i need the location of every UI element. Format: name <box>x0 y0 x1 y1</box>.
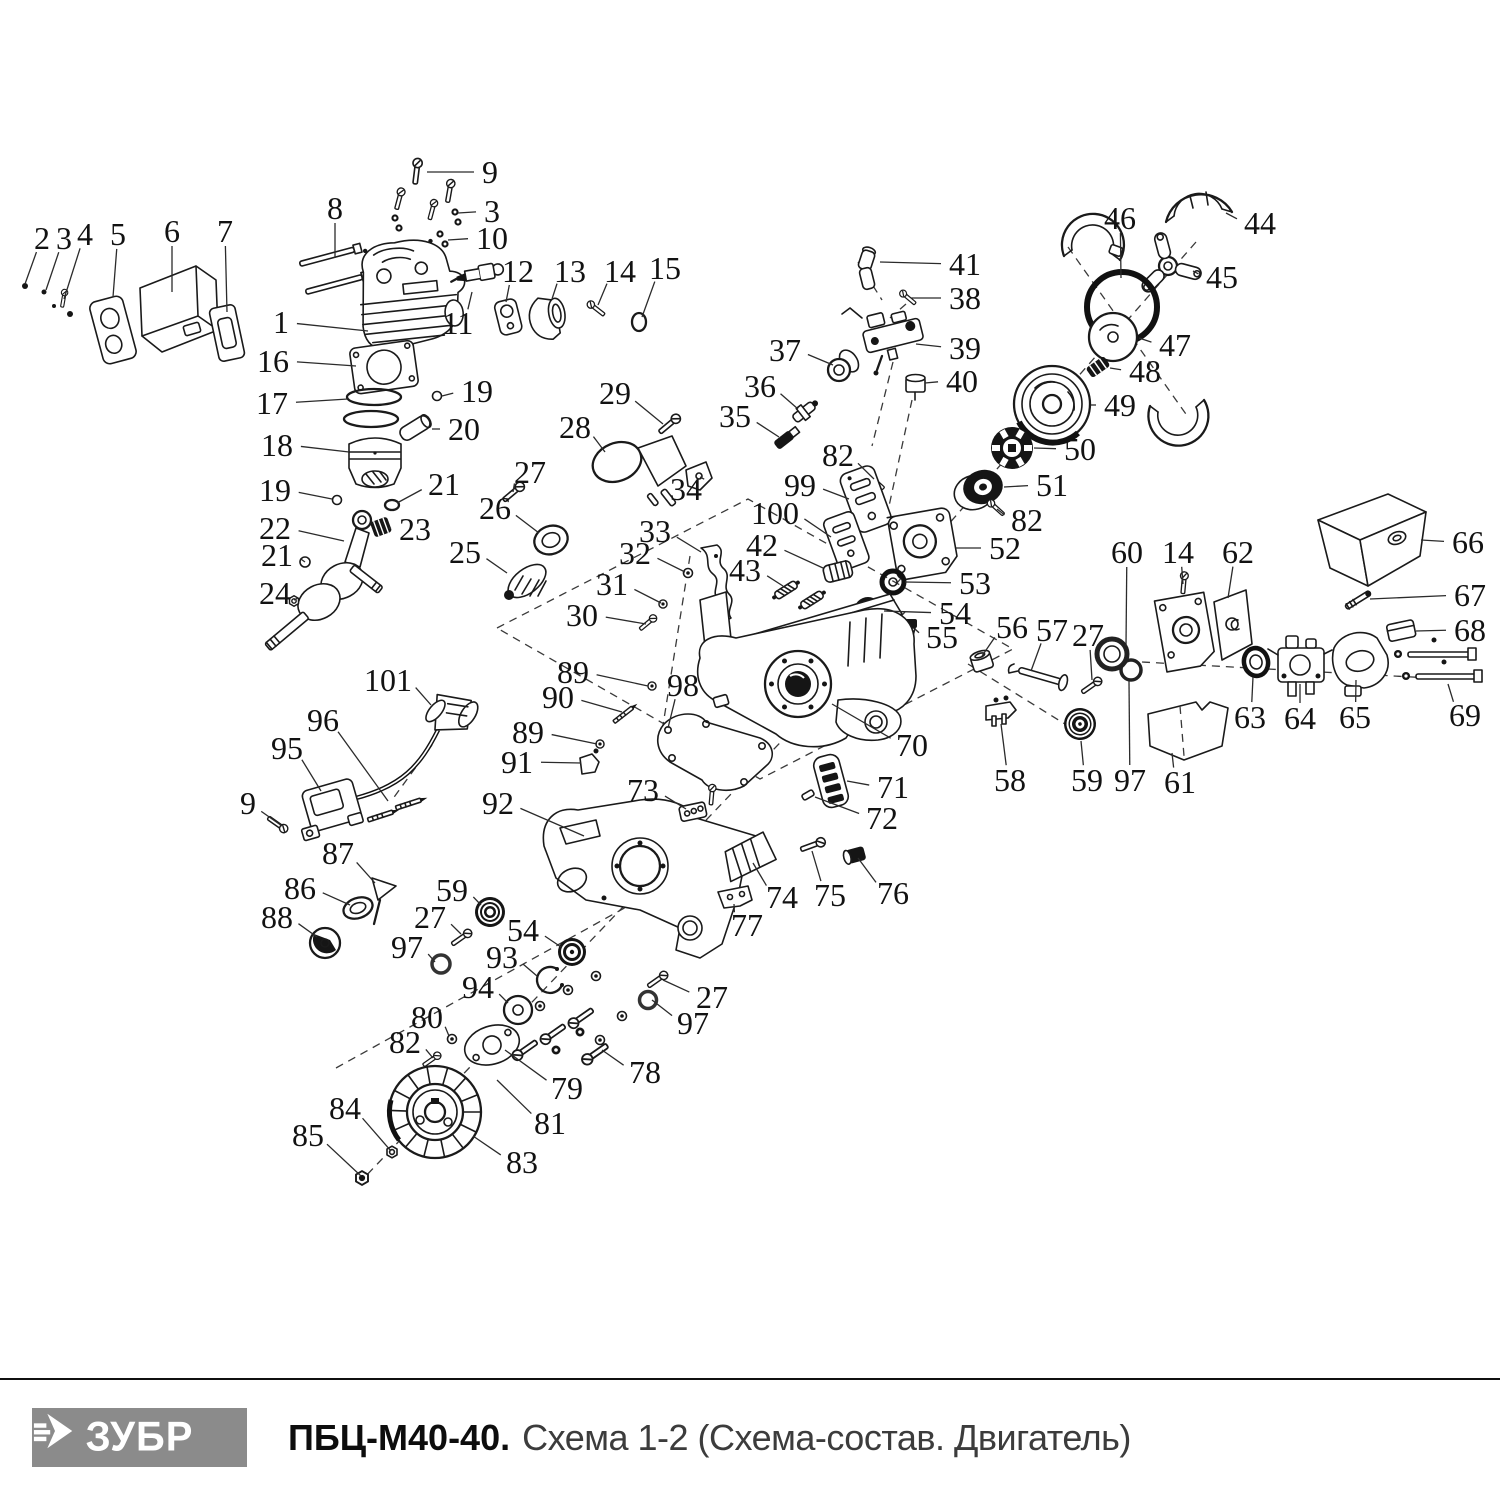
part-number-label: 17 <box>256 385 288 421</box>
fuel-nipple <box>773 426 800 451</box>
part-number-label: 94 <box>462 969 494 1005</box>
spacer-block <box>1386 620 1416 642</box>
part-number-label: 68 <box>1454 612 1486 648</box>
tension-block <box>822 560 853 583</box>
part-number-label: 25 <box>449 534 481 570</box>
leader-line <box>397 490 422 503</box>
leader-line <box>593 437 605 452</box>
crankcase-half <box>543 799 762 958</box>
part-number-label: 13 <box>554 253 586 289</box>
part-number-label: 74 <box>766 879 798 915</box>
leader-line <box>25 252 36 284</box>
leader-line <box>297 324 368 331</box>
part-number-label: 90 <box>542 679 574 715</box>
part-number-label: 27 <box>1072 617 1104 653</box>
part-number-label: 31 <box>596 566 628 602</box>
part-number-label: 57 <box>1036 612 1068 648</box>
leader-line <box>426 1049 433 1058</box>
fuel-valve <box>790 396 822 426</box>
leader-line <box>808 354 833 365</box>
leader-line <box>634 589 661 603</box>
part-number-label: 9 <box>482 154 498 190</box>
oil-pump-worm <box>502 558 551 604</box>
part-number-label: 73 <box>627 772 659 808</box>
leader-line <box>499 994 508 1003</box>
leader-line <box>451 924 461 934</box>
leader-line <box>1004 486 1028 487</box>
part-number-label: 82 <box>389 1024 421 1060</box>
part-number-label: 65 <box>1339 699 1371 735</box>
part-number-label: 19 <box>259 472 291 508</box>
part-number-label: 92 <box>482 785 514 821</box>
leader-line <box>1110 368 1121 370</box>
leader-line <box>296 399 348 402</box>
leader-line <box>642 282 655 317</box>
part-number-label: 23 <box>399 511 431 547</box>
part-number-label: 20 <box>448 411 480 447</box>
plate-79 <box>459 1018 524 1071</box>
o-ring-97a <box>432 955 450 973</box>
leader-line <box>858 858 876 882</box>
part-number-label: 1 <box>273 304 289 340</box>
bushing <box>906 375 925 401</box>
cap-88 <box>310 928 340 958</box>
leader-line <box>486 559 507 573</box>
part-number-label: 100 <box>751 495 799 531</box>
parts-artwork <box>22 158 1482 1185</box>
leader-line <box>523 964 537 976</box>
o-ring-97c <box>640 992 657 1009</box>
part-number-label: 16 <box>257 343 289 379</box>
part-number-label: 34 <box>670 471 702 507</box>
footer-divider <box>0 1378 1500 1380</box>
part-number-label: 37 <box>769 332 801 368</box>
leader-line <box>445 1027 449 1036</box>
part-number-label: 77 <box>731 907 763 943</box>
part-number-label: 60 <box>1111 534 1143 570</box>
leader-line <box>781 394 798 409</box>
pin-clip <box>433 392 442 401</box>
muffler-gasket-inner <box>88 295 137 366</box>
part-number-label: 97 <box>1114 762 1146 798</box>
leader-line <box>602 1050 624 1065</box>
part-number-label: 48 <box>1129 353 1161 389</box>
part-number-label: 43 <box>729 552 761 588</box>
leader-line <box>1226 213 1237 219</box>
retainer-ring <box>632 313 646 331</box>
seal-ring <box>385 500 399 510</box>
muffler-fasteners <box>22 283 73 317</box>
leader-line <box>299 492 332 499</box>
diagram-title: ПБЦ-М40-40. Схема 1-2 (Схема-состав. Дви… <box>288 1408 1131 1467</box>
chain-catcher <box>372 878 396 924</box>
leader-line <box>363 1118 391 1151</box>
leader-line <box>1120 233 1121 278</box>
brand-name: ЗУБР <box>86 1414 194 1461</box>
part-number-label: 21 <box>261 537 293 573</box>
part-number-label: 14 <box>604 253 636 289</box>
part-number-label: 26 <box>479 490 511 526</box>
part-number-label: 8 <box>327 190 343 226</box>
leader-line <box>1126 567 1127 646</box>
part-number-label: 83 <box>506 1144 538 1180</box>
pulley-59a <box>472 894 509 931</box>
leader-line <box>46 252 59 290</box>
part-number-label: 47 <box>1159 327 1191 363</box>
pin-72 <box>801 789 814 800</box>
muffler-gasket-outer <box>209 304 246 362</box>
part-number-label: 87 <box>322 835 354 871</box>
leader-line <box>1034 448 1056 449</box>
throttle-bracket <box>986 696 1016 727</box>
part-number-label: 14 <box>1162 534 1194 570</box>
part-number-label: 69 <box>1449 697 1481 733</box>
part-number-label: 91 <box>501 744 533 780</box>
zubr-logo: ЗУБР <box>32 1408 247 1467</box>
handle-grip <box>812 753 851 810</box>
leader-line <box>1370 596 1446 599</box>
part-number-label: 27 <box>514 454 546 490</box>
leader-line <box>925 382 938 383</box>
brake-band-2 <box>1148 400 1208 446</box>
intake-elbow <box>526 294 569 343</box>
intake-seal <box>1241 646 1270 678</box>
washer-86 <box>340 893 375 922</box>
leader-line <box>1416 630 1446 631</box>
needle-bearing <box>370 516 392 537</box>
leader-line <box>297 362 356 366</box>
oil-pump-housing <box>1154 592 1216 672</box>
leader-line <box>261 811 282 826</box>
leader-line <box>299 531 344 541</box>
leader-line <box>516 515 539 533</box>
leader-line <box>541 762 581 763</box>
leader-line <box>784 550 823 568</box>
leader-line <box>473 897 481 905</box>
part-number-label: 7 <box>217 213 233 249</box>
part-number-label: 30 <box>566 597 598 633</box>
part-number-label: 88 <box>261 899 293 935</box>
parts-diagram-page: 2345679831011112131415161719201819212223… <box>0 0 1500 1500</box>
leader-line <box>1001 724 1006 765</box>
part-number-label: 44 <box>1244 205 1276 241</box>
leader-line <box>458 212 476 213</box>
part-number-label: 97 <box>677 1005 709 1041</box>
leader-line <box>301 446 349 452</box>
part-number-label: 81 <box>534 1105 566 1141</box>
o-ring-97 <box>1121 660 1141 680</box>
ignition-wire <box>356 730 438 798</box>
sprocket <box>991 427 1033 469</box>
part-number-label: 40 <box>946 363 978 399</box>
leader-line <box>545 936 561 947</box>
leader-line <box>677 537 701 552</box>
leader-line <box>880 262 941 264</box>
part-number-label: 41 <box>949 246 981 282</box>
part-number-label: 15 <box>649 250 681 286</box>
part-number-label: 66 <box>1452 524 1484 560</box>
clamp-73 <box>679 802 708 822</box>
leader-line <box>1139 338 1151 342</box>
leader-line <box>916 344 941 347</box>
leader-line <box>505 1050 547 1080</box>
part-number-label: 51 <box>1036 467 1068 503</box>
fuel-elbow <box>857 246 876 290</box>
leader-line <box>652 1000 672 1016</box>
fuel-tank <box>1318 494 1426 586</box>
cap-76 <box>842 846 866 865</box>
shaft-seal <box>882 571 904 593</box>
leader-line <box>905 582 951 583</box>
leader-line <box>113 249 117 297</box>
part-number-label: 63 <box>1234 699 1266 735</box>
part-number-label: 95 <box>271 730 303 766</box>
leader-line <box>1129 681 1130 765</box>
part-number-label: 58 <box>994 762 1026 798</box>
part-number-label: 12 <box>502 253 534 289</box>
model-number: ПБЦ-М40-40. <box>288 1417 510 1459</box>
part-number-label: 67 <box>1454 577 1486 613</box>
clutch-bearing <box>950 465 1008 514</box>
part-number-label: 50 <box>1064 431 1096 467</box>
part-number-label: 5 <box>110 216 126 252</box>
part-number-label: 21 <box>428 466 460 502</box>
leader-line <box>1421 540 1444 541</box>
leader-line <box>323 893 350 905</box>
part-number-label: 59 <box>1071 762 1103 798</box>
leader-line <box>442 393 453 396</box>
leader-line <box>552 735 597 744</box>
part-number-label: 38 <box>949 280 981 316</box>
part-number-label: 75 <box>814 877 846 913</box>
part-number-label: 56 <box>996 609 1028 645</box>
wrist-pin <box>398 413 433 442</box>
hand-guard-segment <box>1166 192 1232 222</box>
leader-line <box>757 422 779 437</box>
throttle-rod <box>1009 662 1070 691</box>
ignition-coil <box>291 778 364 841</box>
part-number-label: 61 <box>1164 764 1196 800</box>
part-number-label: 55 <box>926 619 958 655</box>
leader-line <box>606 617 646 624</box>
leader-line <box>416 688 431 705</box>
part-number-label: 72 <box>866 800 898 836</box>
leader-line <box>473 1136 501 1155</box>
pin-clip <box>333 496 342 505</box>
flywheel <box>389 1066 481 1158</box>
muffler <box>140 266 218 352</box>
part-number-label: 10 <box>476 220 508 256</box>
part-number-label: 4 <box>77 216 93 252</box>
leader-line <box>357 862 375 883</box>
part-number-label: 46 <box>1104 200 1136 236</box>
part-number-label: 101 <box>364 662 412 698</box>
leader-line <box>581 700 622 712</box>
piston-rings <box>344 389 401 427</box>
tank-screw <box>1345 590 1373 610</box>
part-number-label: 76 <box>877 875 909 911</box>
part-number-label: 18 <box>261 427 293 463</box>
part-number-label: 24 <box>259 575 291 611</box>
part-number-label: 78 <box>629 1054 661 1090</box>
part-number-label: 36 <box>744 368 776 404</box>
leader-line <box>767 576 783 586</box>
part-number-label: 96 <box>307 702 339 738</box>
part-number-label: 19 <box>461 373 493 409</box>
bearing-54b <box>558 938 586 966</box>
exploded-parts-diagram: 2345679831011112131415161719201819212223… <box>0 0 1500 1378</box>
heat-shield <box>1148 702 1228 760</box>
leader-line <box>663 980 689 992</box>
leader-line <box>497 1080 531 1114</box>
leader-line <box>1228 567 1233 598</box>
part-number-label: 49 <box>1104 387 1136 423</box>
oil-seal <box>530 521 572 559</box>
piston <box>349 438 401 488</box>
leader-line <box>327 1144 361 1176</box>
primer-bulb <box>828 347 862 381</box>
plug-gasket <box>493 298 523 336</box>
part-number-label: 45 <box>1206 259 1238 295</box>
part-number-label: 3 <box>56 220 72 256</box>
pulley-59 <box>1060 704 1099 743</box>
crankcase-gasket <box>658 714 773 790</box>
part-number-label: 97 <box>391 929 423 965</box>
part-number-label: 98 <box>667 667 699 703</box>
part-number-label: 9 <box>240 785 256 821</box>
leader-line <box>635 401 663 424</box>
leader-line <box>597 675 648 686</box>
grommet-91 <box>580 749 599 775</box>
plug-boot <box>420 686 483 742</box>
carb-spacer <box>1333 633 1389 696</box>
zubr-arrow-icon <box>32 1408 78 1454</box>
leader-line <box>847 781 869 785</box>
leader-line <box>298 924 317 937</box>
leader-line <box>448 239 468 240</box>
part-number-label: 79 <box>551 1070 583 1106</box>
leader-line <box>302 760 321 791</box>
part-number-label: 82 <box>822 437 854 473</box>
part-number-label: 84 <box>329 1090 361 1126</box>
part-number-label: 2 <box>34 220 50 256</box>
part-number-label: 6 <box>164 213 180 249</box>
part-number-label: 62 <box>1222 534 1254 570</box>
leader-line <box>225 246 227 312</box>
part-number-label: 28 <box>559 409 591 445</box>
leader-line <box>915 629 919 633</box>
part-number-label: 64 <box>1284 700 1316 736</box>
schema-subtitle: Схема 1-2 (Схема-состав. Двигатель) <box>522 1417 1131 1459</box>
part-number-label: 70 <box>896 727 928 763</box>
part-number-label: 29 <box>599 375 631 411</box>
part-number-label: 52 <box>989 530 1021 566</box>
base-gasket <box>349 340 419 394</box>
part-number-label: 85 <box>292 1117 324 1153</box>
circlip-93 <box>537 967 564 993</box>
part-number-label: 39 <box>949 330 981 366</box>
leader-line <box>1090 650 1092 680</box>
washer-94 <box>504 996 532 1024</box>
part-number-label: 11 <box>443 305 474 341</box>
leader-line <box>657 558 685 572</box>
